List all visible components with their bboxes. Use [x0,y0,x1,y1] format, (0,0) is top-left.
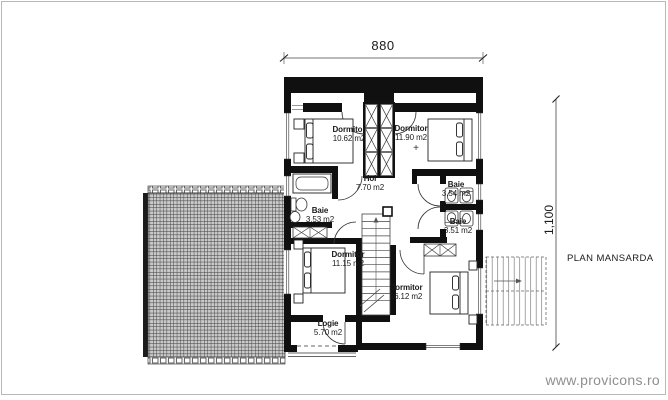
room-area: 16.12 m2 [374,293,438,302]
room-label-dormitor-3: Dormitor 11.15 m2 [316,251,380,268]
room-area: 7.70 m2 [338,184,402,193]
bathtub [293,174,331,193]
dimension-height-label: 1,100 [542,198,556,242]
room-area: 11.90 m2 [379,134,443,143]
room-label-dormitor-1: Dormitor 10.62 m2 [317,126,381,143]
watermark-link[interactable]: www.provicons.ro [538,372,660,388]
room-label-dormitor-2: Dormitor 11.90 m2 [379,125,443,142]
room-area: 5.70 m2 [296,329,360,338]
floor-plan-page: 880 1,100 PLAN MANSARDA www.provicons.ro… [0,0,668,400]
level-marker: + [411,143,421,154]
room-label-baie-2: Baie 3.53 m2 [288,207,352,224]
room-area: 3.54 m2 [424,190,488,199]
room-area: 3.51 m2 [426,227,490,236]
external-staircase [486,257,546,325]
room-label-baie-3: Baie 3.51 m2 [426,218,490,235]
dimension-width-label: 880 [353,38,413,53]
roof-hatch [143,186,285,364]
room-label-hol: Hol 7.70 m2 [338,175,402,192]
plan-title: PLAN MANSARDA [567,253,668,264]
room-label-dormitor-4: Dormitor 16.12 m2 [374,284,438,301]
room-area: 3.53 m2 [288,216,352,225]
room-label-baie-1: Baie 3.54 m2 [424,181,488,198]
room-area: 10.62 m2 [317,135,381,144]
hall-column [383,207,392,216]
room-area: 11.15 m2 [316,260,380,269]
floor-plan-drawing [0,0,668,400]
room-label-logie: Logie 5.70 m2 [296,320,360,337]
dimension-width-line [280,52,487,64]
